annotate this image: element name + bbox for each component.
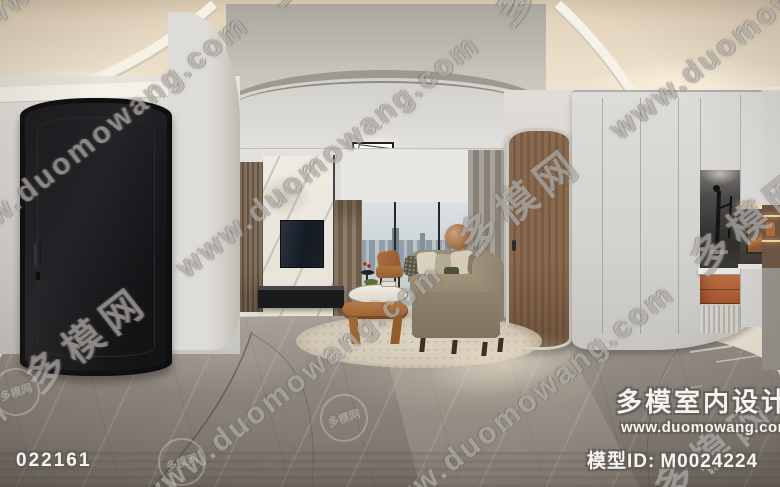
led-strip — [762, 240, 780, 242]
corner-wall — [168, 12, 240, 350]
interior-door-handle — [512, 240, 516, 251]
model-id-value: M0024224 — [660, 451, 758, 472]
cabinet-seam — [640, 98, 641, 334]
table-tray — [381, 281, 396, 287]
sofa-base — [412, 292, 500, 338]
cabinet-seam — [678, 98, 679, 334]
niche-ledge — [698, 268, 742, 274]
entry-door-lock — [36, 272, 40, 280]
cabinet-seam — [602, 98, 603, 334]
led-strip — [762, 215, 780, 217]
entry-door-panel — [37, 117, 155, 357]
interior-door-wood — [506, 128, 572, 350]
drawer-divider — [700, 289, 740, 290]
orange-decor — [766, 222, 775, 236]
panel-code: 022161 — [16, 450, 91, 472]
entry-door-dark — [20, 98, 172, 376]
louver-vent — [700, 305, 740, 333]
sculpture-base — [710, 250, 728, 254]
entry-door-leaf — [25, 103, 167, 371]
fruit-bowl — [364, 279, 378, 285]
model-id-label: 模型ID: — [587, 451, 655, 472]
brand-website: www.duomowang.com — [621, 419, 780, 436]
entry-door-handle — [34, 242, 41, 266]
brand-title: 多模室内设计 — [616, 382, 780, 419]
interior-door-leaf — [509, 131, 569, 347]
model-id-line: 模型ID:M0024224 — [587, 446, 763, 473]
panorama-viewport: www.duomowang.com多模网www.duomowang.com多模网… — [0, 0, 780, 487]
